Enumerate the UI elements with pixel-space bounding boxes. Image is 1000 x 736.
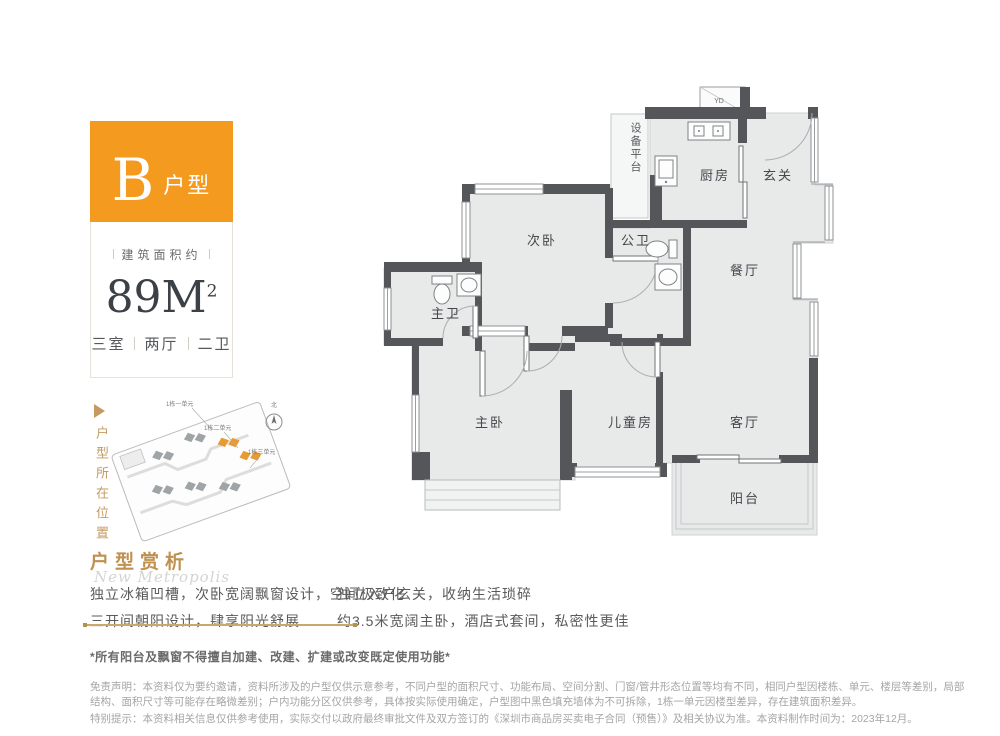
site-label-1: 1栋一单元 <box>166 400 193 408</box>
layout-separator <box>134 337 135 350</box>
master-sink-icon <box>457 274 481 296</box>
room-label-balcony: 阳台 <box>730 491 760 506</box>
duct-label: YD <box>714 98 724 105</box>
site-label-2: 1栋二单元 <box>204 424 231 432</box>
room-label-kitchen: 厨房 <box>700 168 730 183</box>
layout-rooms: 三室 <box>91 333 125 354</box>
bullet-line: 独立入户玄关，收纳生活琐碎 <box>337 581 629 608</box>
room-label-guest-bath: 公卫 <box>621 233 651 248</box>
site-label-3: 1栋三单元 <box>248 448 275 456</box>
balcony-warning: *所有阳台及飘窗不得擅自加建、改建、扩建或改变既定使用功能* <box>90 648 450 665</box>
disclaimer-notice: 免责声明：本资料仅为要约邀请，资料所涉及的户型仅供示意参考，不同户型的面积尺寸、… <box>90 680 970 711</box>
kitchen-sink-icon <box>655 156 677 186</box>
room-label-living: 客厅 <box>730 415 760 430</box>
tick-right <box>209 249 210 259</box>
analysis-bullets-right: 独立入户玄关，收纳生活琐碎 约3.5米宽阔主卧，酒店式套间，私密性更佳 <box>337 581 629 635</box>
disclaimer-special: 特别提示：本资料相关信息仅供参考使用，实际交付以政府最终审批文件及双方签订的《深… <box>90 712 970 728</box>
analysis-title: 户型赏析 <box>90 547 190 574</box>
layout-separator <box>188 337 189 350</box>
bullet-line: 约3.5米宽阔主卧，酒店式套间，私密性更佳 <box>337 608 629 635</box>
site-outline <box>111 401 291 541</box>
unit-type-word: 户型 <box>163 168 211 200</box>
floorplan-page: B 户型 建筑面积约 89M2 三室 两厅 二卫 户型所在位置 <box>0 0 1000 736</box>
gold-divider <box>85 624 355 626</box>
room-label-master-bedroom: 主卧 <box>475 415 505 430</box>
room-label-dining: 餐厅 <box>730 263 760 278</box>
platform-label: 设备平台 <box>627 122 643 174</box>
guest-sink-icon <box>655 264 681 290</box>
master-toilet-icon <box>432 276 452 304</box>
layout-summary: 三室 两厅 二卫 <box>91 333 231 354</box>
site-plan: 北 1栋一单元 1栋二单元 1栋三单元 <box>108 390 293 550</box>
room-label-second-bedroom: 次卧 <box>527 233 557 248</box>
room-label-master-bath: 主卫 <box>431 306 461 321</box>
area-value: 89M2 <box>106 276 218 320</box>
room-label-foyer: 玄关 <box>763 168 793 183</box>
unit-type-badge: B 户型 <box>90 121 233 222</box>
area-sup: 2 <box>207 281 218 301</box>
tick-left <box>113 249 114 259</box>
room-label-kids-room: 儿童房 <box>608 415 653 430</box>
area-caption: 建筑面积约 <box>113 246 209 263</box>
floor-plan: YD <box>375 78 845 548</box>
layout-halls: 两厅 <box>144 333 178 354</box>
compass-label: 北 <box>271 401 277 409</box>
stove-icon <box>688 122 730 140</box>
bay-window <box>425 480 560 510</box>
location-arrow-icon <box>94 404 105 418</box>
unit-type-letter: B <box>112 154 155 206</box>
area-caption-text: 建筑面积约 <box>121 246 201 263</box>
layout-baths: 二卫 <box>198 333 232 354</box>
unit-area-card: 建筑面积约 89M2 三室 两厅 二卫 <box>90 222 233 378</box>
